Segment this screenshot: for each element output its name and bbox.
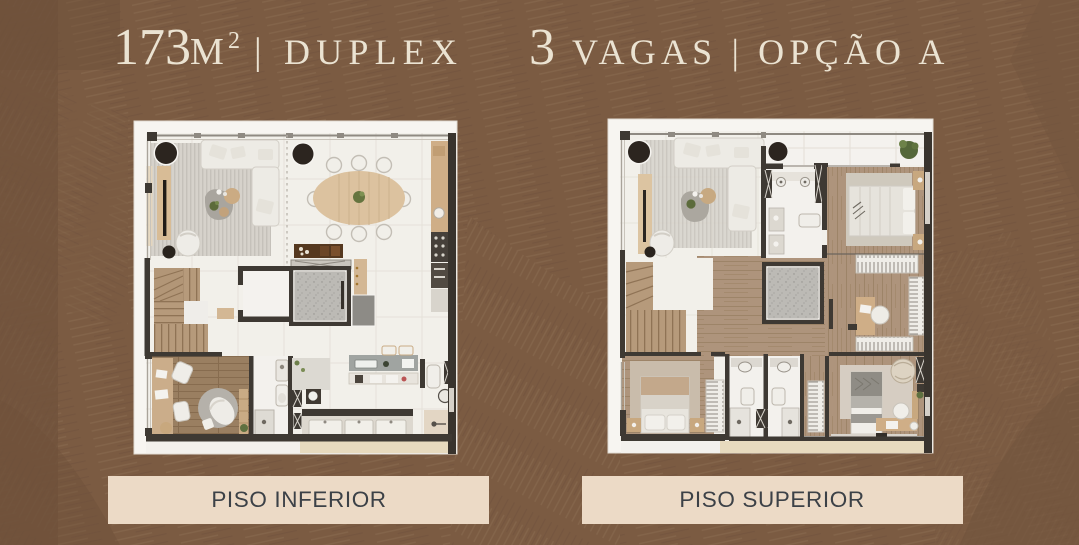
- svg-text:PISO SUPERIOR: PISO SUPERIOR: [679, 487, 864, 512]
- svg-text:DUPLEX: DUPLEX: [284, 32, 463, 72]
- svg-text:PISO INFERIOR: PISO INFERIOR: [211, 487, 386, 512]
- svg-text:|: |: [254, 31, 262, 73]
- svg-text:2: 2: [228, 28, 240, 54]
- svg-text:173: 173: [113, 19, 191, 76]
- svg-text:VAGAS | OPÇÃO A: VAGAS | OPÇÃO A: [572, 32, 950, 72]
- svg-text:M: M: [190, 31, 224, 73]
- svg-text:3: 3: [529, 19, 555, 76]
